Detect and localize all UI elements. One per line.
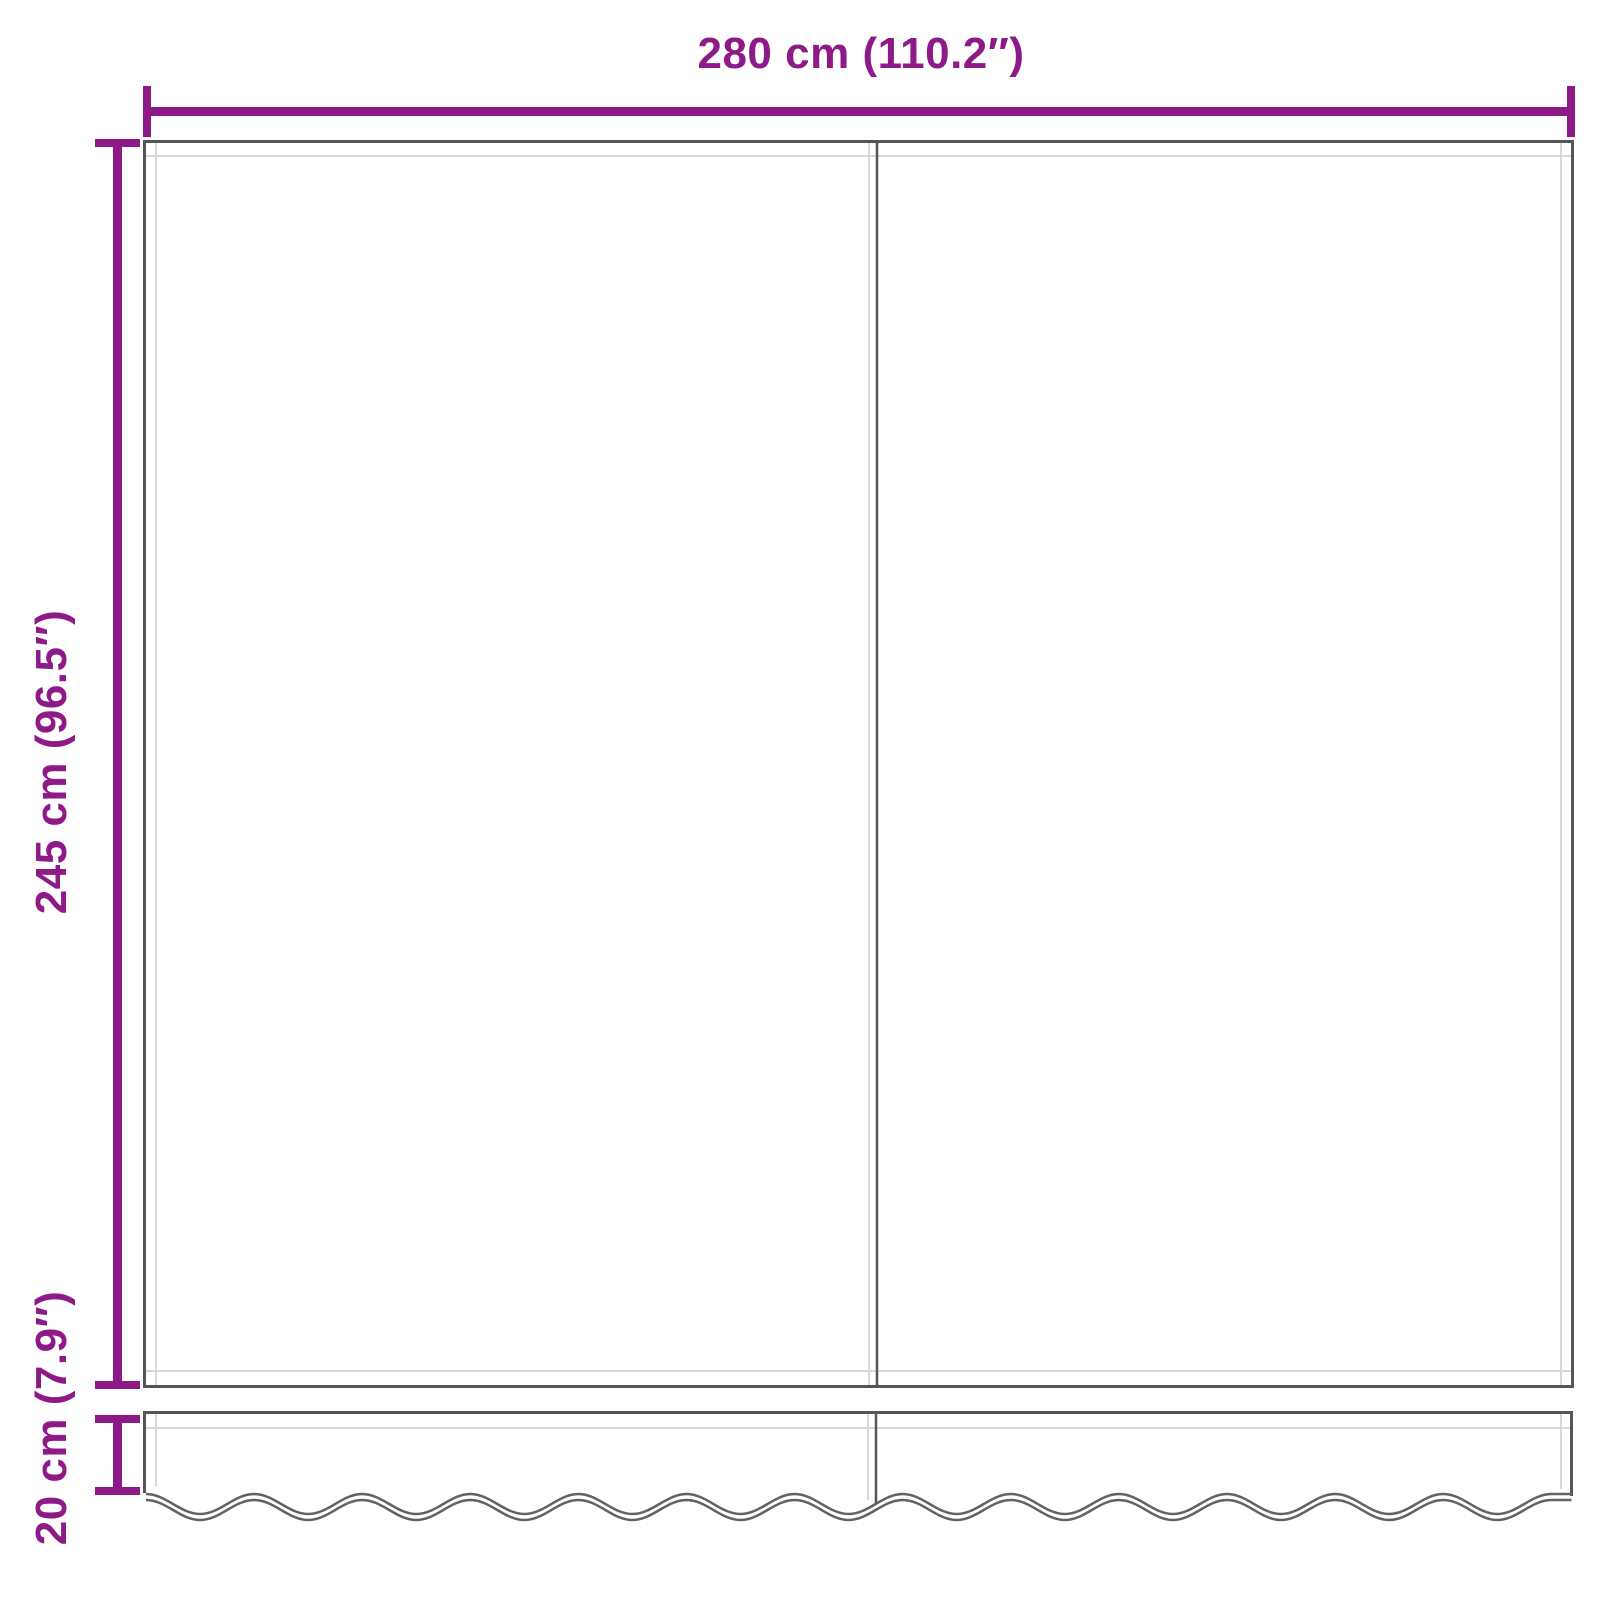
awning-dimension-diagram: 280 cm (110.2″) 245 cm (96.5″) 20 cm (7.… bbox=[0, 0, 1600, 1600]
valance-height-dimension-label: 20 cm (7.9″) bbox=[27, 1291, 77, 1546]
height-dimension-line bbox=[95, 139, 140, 1389]
width-dimension-label: 280 cm (110.2″) bbox=[697, 29, 1024, 79]
diagram-canvas bbox=[0, 0, 1600, 1600]
valance-panel bbox=[143, 1412, 1573, 1520]
awning-fabric-panel bbox=[145, 142, 1573, 1387]
width-dimension-line bbox=[143, 86, 1575, 137]
height-dimension-bar bbox=[113, 143, 122, 1385]
scalloped-edge-top bbox=[146, 1494, 1572, 1514]
scalloped-edge-bottom bbox=[146, 1500, 1572, 1520]
height-dimension-label: 245 cm (96.5″) bbox=[27, 610, 77, 914]
valance-height-dimension-line bbox=[95, 1415, 140, 1495]
width-dimension-bar bbox=[147, 107, 1571, 116]
fabric-panel-outline bbox=[145, 142, 1573, 1387]
valance-dimension-bar bbox=[113, 1419, 122, 1491]
